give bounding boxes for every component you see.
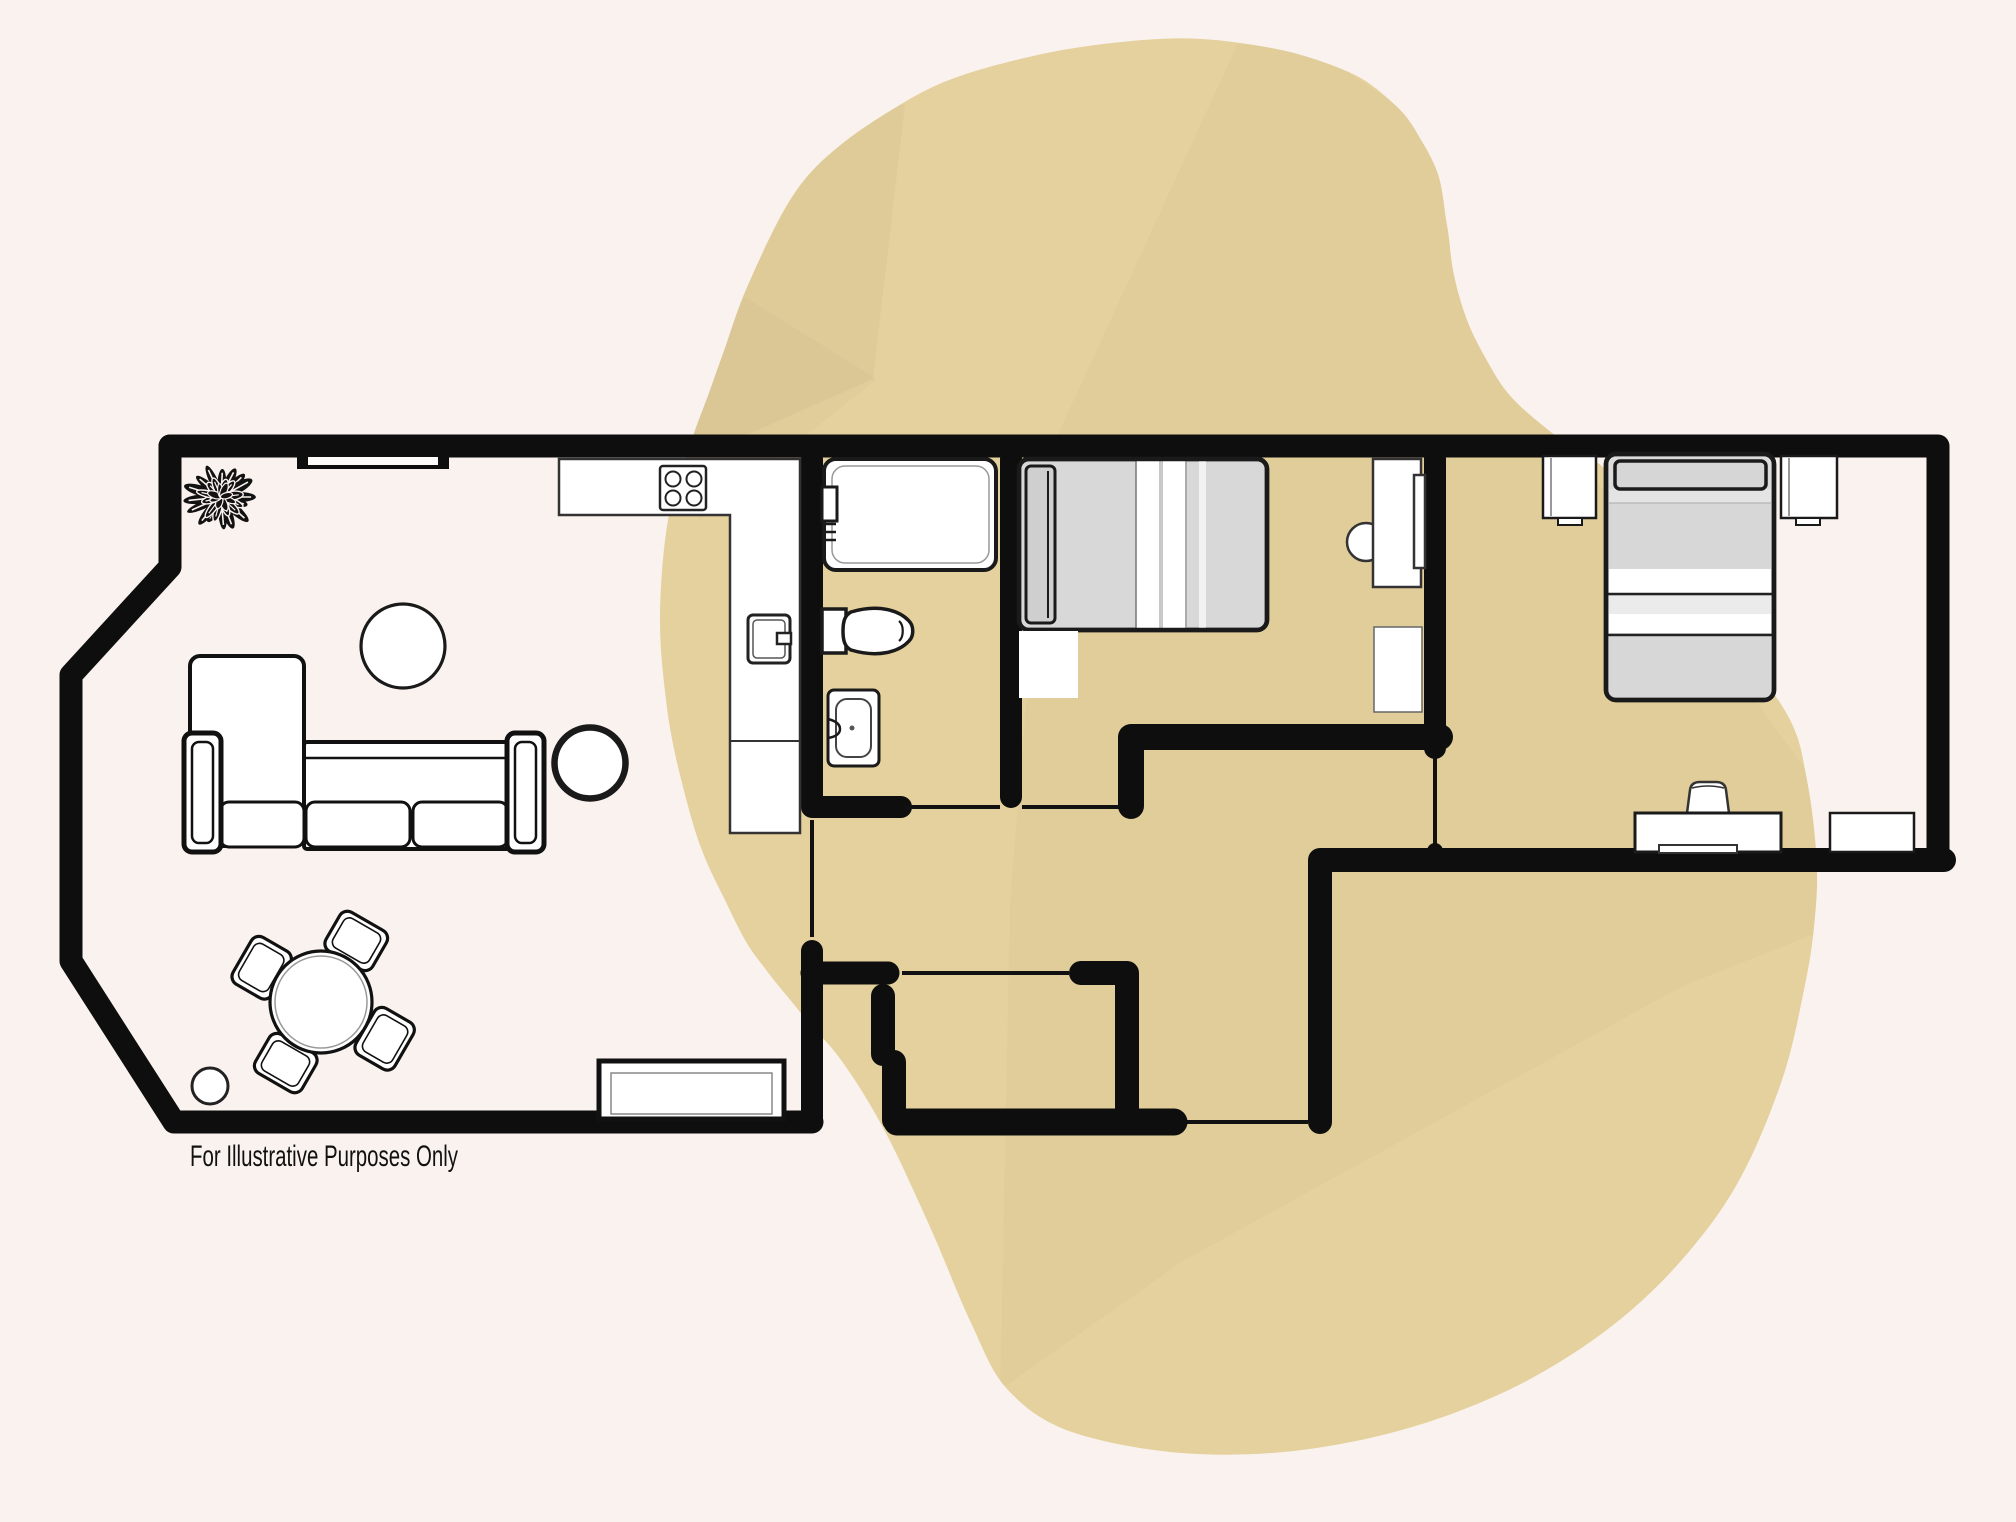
svg-text:For Illustrative Purposes Only: For Illustrative Purposes Only: [190, 1140, 458, 1173]
